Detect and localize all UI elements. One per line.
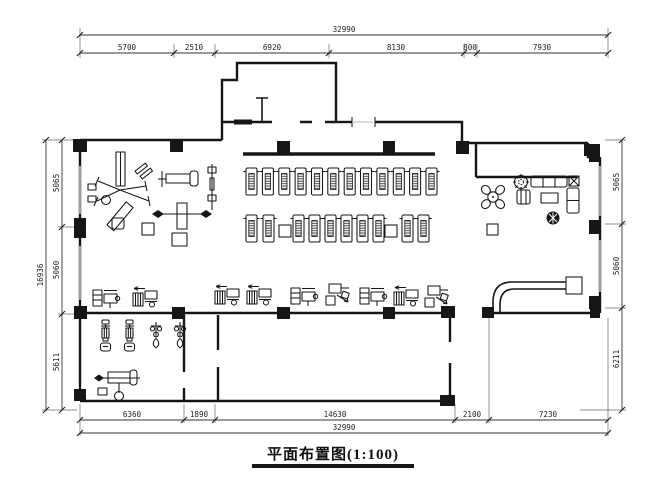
chair-icon (494, 198, 506, 210)
strength-machine-icon (394, 286, 418, 306)
floor-plan-page: 32990 5700 2510 6920 8130 800 7930 (0, 0, 667, 500)
treadmill-icon (244, 215, 260, 242)
dim-left-1: 5065 (52, 174, 61, 192)
dim-right-3: 6211 (612, 349, 621, 368)
treadmill-icon (323, 215, 339, 242)
dim-top-2: 2510 (185, 43, 204, 52)
column-icon (482, 307, 494, 318)
strength-machine-icon (247, 285, 271, 305)
column-icon (73, 139, 87, 152)
column-icon (590, 307, 600, 318)
dim-top-3: 6920 (263, 43, 282, 52)
treadmill-icon (342, 168, 358, 195)
entrance-door (234, 120, 252, 125)
dim-top-6: 7930 (533, 43, 552, 52)
barbell-rack-icon (208, 164, 216, 210)
column-icon (170, 140, 183, 152)
dimension-chain-left: 5065 5060 5611 16936 (36, 137, 77, 413)
dim-bottom-overall: 32990 (333, 423, 356, 432)
dim-left-overall: 16936 (36, 263, 45, 286)
column-icon (385, 225, 397, 237)
column-icon (142, 223, 154, 235)
treadmill-icon (391, 168, 407, 195)
strength-machine-icon (93, 290, 120, 308)
treadmill-icon (339, 215, 355, 242)
treadmill-icon (407, 168, 423, 195)
strength-machine-icon (425, 286, 448, 307)
treadmill-icon (374, 168, 390, 195)
column-icon (440, 395, 455, 406)
treadmill-icon (260, 168, 276, 195)
column-icon (74, 389, 86, 401)
strength-machine-icon (360, 288, 387, 306)
dimension-chain-bottom: 6360 1890 14630 2100 7230 32990 (77, 318, 611, 436)
treadmill-icon (416, 215, 432, 242)
treadmill-icon (358, 168, 374, 195)
column-icon (589, 148, 600, 162)
dim-top-5: 800 (463, 43, 477, 52)
bench-press-icon (158, 171, 198, 187)
coffee-table-icon (541, 193, 558, 203)
dimension-chain-right: 5065 5060 6211 (580, 137, 626, 413)
treadmill-row-2 (244, 215, 432, 242)
dim-right-1: 5065 (612, 173, 621, 191)
column-icon (487, 224, 498, 235)
dim-left-2: 5060 (52, 260, 61, 279)
lounge-partition (476, 143, 577, 177)
cardio-room (94, 320, 186, 401)
dim-left-3: 5611 (52, 352, 61, 371)
armchair-icon (517, 190, 530, 204)
column-icon (172, 307, 185, 319)
exercise-bike-icon (125, 320, 135, 351)
column-icon (456, 141, 469, 154)
windows (80, 166, 600, 300)
treadmill-icon (325, 168, 341, 195)
treadmill-icon (371, 215, 387, 242)
column-icon (74, 306, 87, 319)
treadmill-icon (244, 168, 260, 195)
strength-machine-icon (215, 285, 239, 305)
curved-partition-icon (493, 277, 582, 313)
plant-icon (513, 174, 529, 190)
drawing-title-block: 平面布置图(1:100) (252, 445, 414, 468)
weight-bench-icon (152, 203, 212, 246)
strength-machine-icon (133, 287, 157, 307)
strength-machine-icon (326, 284, 349, 305)
dim-bottom-3: 14630 (324, 410, 347, 419)
elliptical-icon (150, 322, 161, 348)
column-icon (383, 141, 395, 153)
dim-bottom-2: 1890 (190, 410, 209, 419)
multi-station-gym-icon (88, 152, 153, 231)
dim-bottom-4: 2100 (463, 410, 482, 419)
dim-bottom-5: 7230 (539, 410, 558, 419)
treadmill-icon (424, 168, 440, 195)
treadmill-icon (261, 215, 277, 242)
treadmill-icon (355, 215, 371, 242)
strength-machine-row (93, 284, 448, 308)
treadmill-icon (276, 168, 292, 195)
treadmill-icon (400, 215, 416, 242)
column-icon (74, 218, 86, 238)
walls (80, 63, 600, 401)
chair-icon (480, 184, 492, 196)
column-icon (589, 220, 600, 234)
entrance-vestibule (222, 63, 336, 140)
title-underline (252, 464, 414, 468)
treadmill-icon (309, 168, 325, 195)
treadmill-row-1 (244, 168, 440, 195)
dim-bottom-1: 6360 (123, 410, 142, 419)
dim-right-2: 5060 (612, 256, 621, 275)
treadmill-icon (307, 215, 323, 242)
bench-press-icon (94, 370, 140, 401)
treadmill-icon (293, 168, 309, 195)
round-table-icon (480, 184, 507, 211)
column-icon (441, 306, 455, 318)
page-title: 平面布置图(1:100) (267, 445, 399, 463)
column-icon (383, 307, 395, 319)
column-icon (277, 141, 290, 153)
dim-top-4: 8130 (387, 43, 406, 52)
exercise-bike-icon (101, 320, 111, 351)
chair-icon (480, 198, 492, 210)
plant-icon (547, 212, 560, 225)
column-icon (277, 307, 290, 319)
column-icon (279, 225, 291, 237)
strength-machine-icon (291, 288, 318, 306)
floor-plan-canvas: 32990 5700 2510 6920 8130 800 7930 (0, 0, 667, 500)
treadmill-icon (291, 215, 307, 242)
dimension-chain-top: 32990 5700 2510 6920 8130 800 7930 (77, 25, 611, 58)
chair-icon (494, 184, 506, 196)
sofa-icon (567, 188, 579, 213)
dim-top-overall: 32990 (333, 25, 356, 34)
dim-top-1: 5700 (118, 43, 137, 52)
lounge-zone (480, 174, 579, 225)
